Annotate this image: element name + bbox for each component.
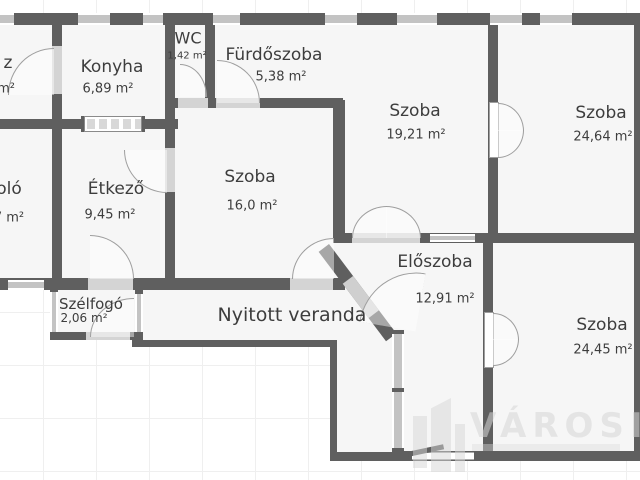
window <box>325 13 357 25</box>
window <box>540 13 572 25</box>
window <box>0 13 14 25</box>
window <box>213 13 240 25</box>
door-opening-szelfogo-north <box>88 278 133 290</box>
room-area-szoba-4: 24,45 m² <box>573 343 632 358</box>
room-area-szoba-3: 16,0 m² <box>227 199 278 214</box>
room-floor-left-column <box>0 119 175 290</box>
room-area-wc: 1,42 m² <box>167 51 206 62</box>
room-label-veranda: Nyitott veranda <box>218 304 367 326</box>
veranda-edge-east <box>330 340 337 458</box>
window <box>135 294 143 332</box>
window <box>397 13 437 25</box>
room-label-cut-top-left: z <box>4 53 13 73</box>
veranda-edge-south <box>132 340 337 347</box>
room-label-eloszoba: Előszoba <box>397 252 472 272</box>
watermark-brand: VÁROSI <box>470 406 640 446</box>
window <box>8 280 44 290</box>
window <box>392 334 404 388</box>
room-label-furdoszoba: Fürdőszoba <box>226 45 323 65</box>
building-icon <box>413 398 465 472</box>
room-label-szoba-1: Szoba <box>389 101 440 121</box>
room-area-eloszoba: 12,91 m² <box>415 292 474 307</box>
room-area-furdoszoba: 5,38 m² <box>256 70 307 85</box>
wall-szoba16-szoba19 <box>333 100 345 243</box>
room-area-cut-left: 7 m² <box>0 211 24 226</box>
room-area-cut-top-left: m² <box>0 82 15 97</box>
watermark-subtitle-bar <box>472 444 620 451</box>
room-area-szoba-2: 24,64 m² <box>573 130 632 145</box>
room-label-etkezo: Étkező <box>88 179 144 199</box>
room-area-szelfogo: 2,06 m² <box>60 311 107 325</box>
room-label-cut-left: oló <box>0 179 22 199</box>
window <box>392 392 404 448</box>
room-label-szoba-2: Szoba <box>575 103 626 123</box>
room-area-szoba-1: 19,21 m² <box>386 128 445 143</box>
door-opening-veranda <box>290 278 333 290</box>
veranda-edge-bottom <box>330 452 404 461</box>
room-area-konyha: 6,89 m² <box>83 82 134 97</box>
room-label-konyha: Konyha <box>81 57 144 77</box>
room-label-wc: WC <box>175 29 202 48</box>
window <box>490 13 522 25</box>
window <box>430 234 475 242</box>
floor-plan: z m² Konyha 6,89 m² WC 1,42 m² Fürdőszob… <box>0 0 640 480</box>
door-opening-wc <box>178 98 208 108</box>
window <box>78 13 110 25</box>
pass-through-window <box>84 116 142 132</box>
room-area-etkezo: 9,45 m² <box>85 208 136 223</box>
window <box>143 13 163 25</box>
room-label-szoba-3: Szoba <box>224 167 275 187</box>
wall-east <box>634 25 640 461</box>
window <box>50 292 58 332</box>
wall-south-right <box>483 451 640 461</box>
wall-szoba24-szoba2445 <box>488 233 640 243</box>
room-label-szoba-4: Szoba <box>576 315 627 335</box>
